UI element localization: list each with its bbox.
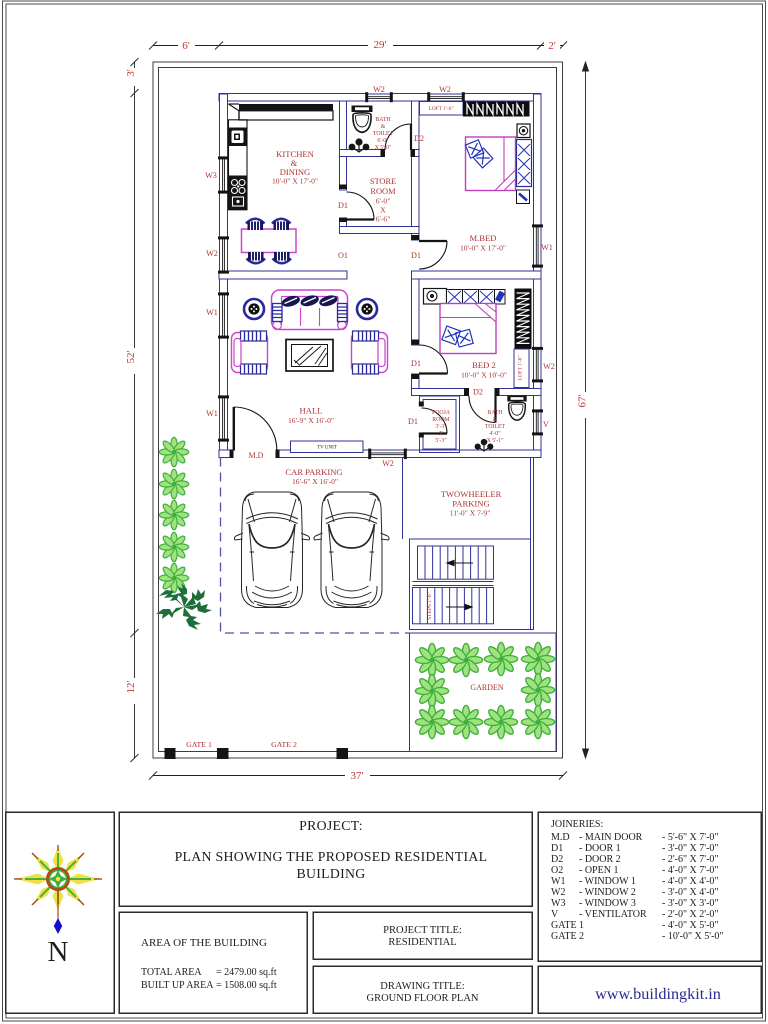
svg-text:ROOM: ROOM [432, 417, 449, 423]
svg-text:- 10'-0" X 5'-0": - 10'-0" X 5'-0" [662, 931, 723, 942]
svg-text:www.buildingkit.in: www.buildingkit.in [595, 985, 721, 1003]
svg-text:W2: W2 [543, 362, 555, 371]
svg-text:11'-0" X 7-9": 11'-0" X 7-9" [450, 509, 491, 518]
svg-text:- VENTILATOR: - VENTILATOR [579, 909, 647, 920]
svg-text:W1: W1 [206, 409, 218, 418]
svg-text:M.D: M.D [551, 832, 570, 843]
svg-text:6'-0": 6'-0" [377, 138, 388, 144]
svg-text:- 2'-0" X 2'-0": - 2'-0" X 2'-0" [662, 909, 718, 920]
svg-text:&: & [381, 124, 386, 130]
svg-text:STORE: STORE [370, 177, 396, 186]
svg-text:- 4'-0" X 5'-0": - 4'-0" X 5'-0" [662, 920, 718, 931]
svg-text:- MAIN DOOR: - MAIN DOOR [579, 832, 643, 843]
svg-text:V: V [551, 909, 559, 920]
svg-text:- 4'-0" X 7'-0": - 4'-0" X 7'-0" [662, 865, 718, 876]
svg-text:6'-0": 6'-0" [376, 197, 391, 206]
svg-text:TOILET: TOILET [485, 424, 506, 430]
svg-text:BUILDING: BUILDING [296, 866, 365, 881]
svg-text:STEPS 1'-6": STEPS 1'-6" [427, 592, 433, 620]
svg-text:6'-6": 6'-6" [376, 215, 391, 224]
svg-text:POOJA: POOJA [432, 410, 451, 416]
svg-text:- WINDOW 2: - WINDOW 2 [579, 887, 636, 898]
svg-text:16'-9" X 16'-0": 16'-9" X 16'-0" [288, 416, 334, 425]
svg-text:&: & [493, 417, 498, 423]
svg-text:X 5'-1": X 5'-1" [487, 438, 504, 444]
svg-text:TOTAL AREA: TOTAL AREA [141, 967, 202, 978]
svg-text:10'-0" X 17'-0": 10'-0" X 17'-0" [460, 244, 506, 253]
svg-text:W2: W2 [373, 85, 385, 94]
svg-text:- WINDOW 3: - WINDOW 3 [579, 898, 636, 909]
svg-text:D1: D1 [551, 843, 563, 854]
svg-text:37': 37' [351, 770, 364, 782]
svg-text:AREA OF THE BUILDING: AREA OF THE BUILDING [141, 937, 267, 949]
svg-text:- OPEN 1: - OPEN 1 [579, 865, 618, 876]
svg-text:DINING: DINING [280, 167, 311, 177]
svg-text:- 3'-0" X 4'-0": - 3'-0" X 4'-0" [662, 887, 718, 898]
svg-text:W3: W3 [205, 171, 217, 180]
svg-text:2': 2' [548, 40, 556, 52]
svg-text:X 5'-0": X 5'-0" [375, 145, 392, 151]
svg-text:W2: W2 [439, 85, 451, 94]
svg-text:X: X [380, 206, 386, 215]
svg-text:GATE 2: GATE 2 [551, 931, 584, 942]
svg-text:PROJECT:: PROJECT: [299, 818, 363, 833]
svg-text:W2: W2 [551, 887, 565, 898]
svg-text:- 3'-0" X 3'-0": - 3'-0" X 3'-0" [662, 898, 718, 909]
svg-text:- DOOR 2: - DOOR 2 [579, 854, 621, 865]
svg-text:GATE 1: GATE 1 [186, 740, 212, 749]
svg-text:M.D: M.D [249, 451, 264, 460]
svg-text:12': 12' [125, 680, 137, 693]
svg-text:V: V [543, 420, 549, 429]
svg-text:10'-0" X 10'-0": 10'-0" X 10'-0" [461, 371, 507, 380]
svg-text:D1: D1 [338, 201, 348, 210]
svg-text:BATH: BATH [375, 117, 391, 123]
svg-text:BUILT UP AREA: BUILT UP AREA [141, 980, 214, 991]
svg-text:TWOWHEELER: TWOWHEELER [441, 489, 502, 499]
svg-text:29': 29' [374, 39, 387, 51]
svg-text:6': 6' [182, 40, 190, 52]
svg-text:O2: O2 [551, 865, 563, 876]
svg-text:- WINDOW 1: - WINDOW 1 [579, 876, 636, 887]
svg-text:67': 67' [577, 394, 589, 407]
svg-text:3': 3' [125, 69, 137, 77]
svg-text:LOFT 1'-6": LOFT 1'-6" [518, 355, 524, 380]
svg-text:D1: D1 [408, 417, 418, 426]
svg-text:GATE 1: GATE 1 [551, 920, 584, 931]
svg-text:- DOOR 1: - DOOR 1 [579, 843, 621, 854]
svg-text:W1: W1 [541, 243, 553, 252]
svg-text:DRAWING TITLE:: DRAWING TITLE: [380, 981, 464, 992]
svg-text:D1: D1 [411, 359, 421, 368]
svg-text:CAR PARKING: CAR PARKING [285, 467, 342, 477]
svg-text:TV UNIT: TV UNIT [317, 446, 337, 451]
svg-text:BED 2: BED 2 [472, 360, 496, 370]
svg-text:GARDEN: GARDEN [470, 683, 504, 692]
svg-text:HALL: HALL [300, 406, 323, 416]
svg-text:- 2'-6" X 7'-0": - 2'-6" X 7'-0" [662, 854, 718, 865]
svg-text:RESIDENTIAL: RESIDENTIAL [388, 937, 456, 948]
svg-text:= 2479.00 sq.ft: = 2479.00 sq.ft [216, 967, 277, 978]
svg-text:PARKING: PARKING [452, 499, 489, 509]
svg-text:O1: O1 [338, 251, 348, 260]
svg-text:= 1508.00 sq.ft: = 1508.00 sq.ft [216, 980, 277, 991]
svg-text:W1: W1 [206, 308, 218, 317]
svg-text:- 3'-0" X 7'-0": - 3'-0" X 7'-0" [662, 843, 718, 854]
svg-text:W2: W2 [382, 459, 394, 468]
svg-text:M.BED: M.BED [470, 233, 497, 243]
svg-text:5'-3": 5'-3" [435, 438, 446, 444]
svg-text:N: N [48, 936, 69, 968]
svg-text:D2: D2 [414, 134, 424, 143]
svg-text:4'-0": 4'-0" [489, 431, 500, 437]
svg-text:TOILET: TOILET [373, 131, 394, 137]
svg-text:GATE 2: GATE 2 [271, 740, 297, 749]
svg-text:PROJECT TITLE:: PROJECT TITLE: [383, 925, 462, 936]
svg-text:ROOM: ROOM [370, 187, 396, 196]
svg-text:PLAN SHOWING THE PROPOSED RESI: PLAN SHOWING THE PROPOSED RESIDENTIAL [175, 849, 488, 864]
svg-text:52': 52' [125, 350, 137, 363]
svg-text:LOFT 1'-6": LOFT 1'-6" [428, 106, 453, 112]
svg-text:- 4'-0" X 4'-0": - 4'-0" X 4'-0" [662, 876, 718, 887]
svg-text:3'-3": 3'-3" [435, 424, 446, 430]
svg-text:10'-0" X 17'-0": 10'-0" X 17'-0" [272, 177, 318, 186]
svg-text:JOINERIES:: JOINERIES: [551, 819, 603, 830]
svg-text:D2: D2 [473, 388, 483, 397]
svg-text:16'-6" X 16'-0": 16'-6" X 16'-0" [292, 477, 338, 486]
svg-text:D1: D1 [411, 251, 421, 260]
svg-text:- 5'-6" X 7'-0": - 5'-6" X 7'-0" [662, 832, 718, 843]
svg-text:W3: W3 [551, 898, 565, 909]
svg-text:GROUND FLOOR PLAN: GROUND FLOOR PLAN [366, 993, 478, 1004]
svg-text:W1: W1 [551, 876, 565, 887]
svg-text:BATH: BATH [487, 410, 503, 416]
svg-text:W2: W2 [206, 249, 218, 258]
svg-text:D2: D2 [551, 854, 563, 865]
